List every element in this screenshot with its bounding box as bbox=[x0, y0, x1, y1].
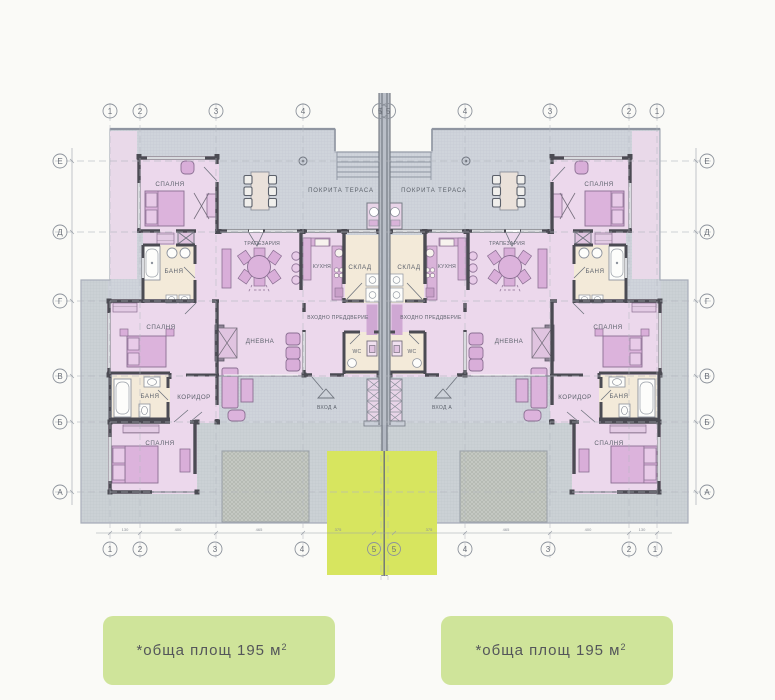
svg-text:БАНЯ: БАНЯ bbox=[165, 268, 184, 275]
svg-text:КУХНЯ: КУХНЯ bbox=[438, 264, 456, 270]
svg-text:3: 3 bbox=[548, 107, 553, 116]
svg-text:2: 2 bbox=[138, 545, 143, 554]
svg-text:БАНЯ: БАНЯ bbox=[610, 393, 629, 400]
svg-text:КОРИДОР: КОРИДОР bbox=[177, 394, 211, 401]
svg-text:1: 1 bbox=[655, 107, 660, 116]
svg-text:Е: Е bbox=[57, 157, 62, 166]
svg-text:375: 375 bbox=[335, 527, 342, 532]
svg-text:4: 4 bbox=[300, 545, 305, 554]
svg-text:СПАЛНЯ: СПАЛНЯ bbox=[146, 324, 175, 331]
svg-text:375: 375 bbox=[426, 527, 433, 532]
svg-text:WC: WC bbox=[353, 349, 362, 355]
svg-text:ПОКРИТА ТЕРАСА: ПОКРИТА ТЕРАСА bbox=[308, 188, 374, 194]
svg-text:4: 4 bbox=[463, 107, 468, 116]
svg-text:3: 3 bbox=[213, 545, 218, 554]
svg-text:БАНЯ: БАНЯ bbox=[586, 268, 605, 275]
svg-text:Б: Б bbox=[704, 418, 709, 427]
svg-text:КОРИДОР: КОРИДОР bbox=[558, 394, 592, 401]
svg-text:СПАЛНЯ: СПАЛНЯ bbox=[584, 181, 613, 188]
svg-text:СПАЛНЯ: СПАЛНЯ bbox=[155, 181, 184, 188]
svg-text:СКЛАД: СКЛАД bbox=[348, 264, 371, 271]
svg-text:1: 1 bbox=[653, 545, 658, 554]
svg-text:465: 465 bbox=[256, 527, 263, 532]
svg-text:4: 4 bbox=[301, 107, 306, 116]
svg-text:130: 130 bbox=[639, 527, 646, 532]
svg-text:ВХОД А: ВХОД А bbox=[317, 405, 337, 411]
svg-text:4: 4 bbox=[463, 545, 468, 554]
svg-text:400: 400 bbox=[175, 527, 182, 532]
svg-text:Г: Г bbox=[705, 297, 710, 306]
svg-text:1: 1 bbox=[108, 545, 113, 554]
svg-text:СПАЛНЯ: СПАЛНЯ bbox=[593, 324, 622, 331]
svg-text:465: 465 bbox=[503, 527, 510, 532]
svg-text:5: 5 bbox=[378, 107, 383, 116]
svg-text:ВХОДНО ПРЕДДВЕРИЕ: ВХОДНО ПРЕДДВЕРИЕ bbox=[400, 315, 462, 321]
svg-text:5: 5 bbox=[386, 107, 391, 116]
svg-text:3: 3 bbox=[546, 545, 551, 554]
svg-text:5: 5 bbox=[372, 545, 377, 554]
svg-text:130: 130 bbox=[122, 527, 129, 532]
svg-text:В: В bbox=[57, 372, 62, 381]
svg-text:WC: WC bbox=[408, 349, 417, 355]
svg-text:2: 2 bbox=[627, 107, 632, 116]
svg-text:ВХОД А: ВХОД А bbox=[432, 405, 452, 411]
svg-text:Б: Б bbox=[57, 418, 62, 427]
svg-text:5: 5 bbox=[392, 545, 397, 554]
svg-text:ДНЕВНА: ДНЕВНА bbox=[246, 338, 275, 345]
svg-text:2: 2 bbox=[627, 545, 632, 554]
svg-text:Е: Е bbox=[704, 157, 709, 166]
svg-text:ДНЕВНА: ДНЕВНА bbox=[495, 338, 524, 345]
svg-text:1: 1 bbox=[108, 107, 113, 116]
svg-text:400: 400 bbox=[585, 527, 592, 532]
svg-text:2: 2 bbox=[138, 107, 143, 116]
svg-text:*обща площ 195 м2: *обща площ 195 м2 bbox=[136, 642, 287, 659]
svg-text:ТРАПЕЗАРИЯ: ТРАПЕЗАРИЯ bbox=[244, 241, 280, 247]
svg-text:А: А bbox=[704, 488, 710, 497]
svg-text:БАНЯ: БАНЯ bbox=[141, 393, 160, 400]
svg-text:*обща площ 195 м2: *обща площ 195 м2 bbox=[475, 642, 626, 659]
svg-text:КУХНЯ: КУХНЯ bbox=[313, 264, 331, 270]
svg-text:СКЛАД: СКЛАД bbox=[397, 264, 420, 271]
svg-text:СПАЛНЯ: СПАЛНЯ bbox=[594, 440, 623, 447]
svg-text:ПОКРИТА ТЕРАСА: ПОКРИТА ТЕРАСА bbox=[401, 188, 467, 194]
svg-text:Д: Д bbox=[704, 228, 710, 237]
svg-text:ВХОДНО ПРЕДДВЕРИЕ: ВХОДНО ПРЕДДВЕРИЕ bbox=[307, 315, 369, 321]
svg-text:В: В bbox=[704, 372, 709, 381]
svg-text:ТРАПЕЗАРИЯ: ТРАПЕЗАРИЯ bbox=[489, 241, 525, 247]
svg-text:3: 3 bbox=[214, 107, 219, 116]
svg-text:СПАЛНЯ: СПАЛНЯ bbox=[145, 440, 174, 447]
svg-text:А: А bbox=[57, 488, 63, 497]
svg-text:Д: Д bbox=[57, 228, 63, 237]
svg-text:Г: Г bbox=[58, 297, 63, 306]
